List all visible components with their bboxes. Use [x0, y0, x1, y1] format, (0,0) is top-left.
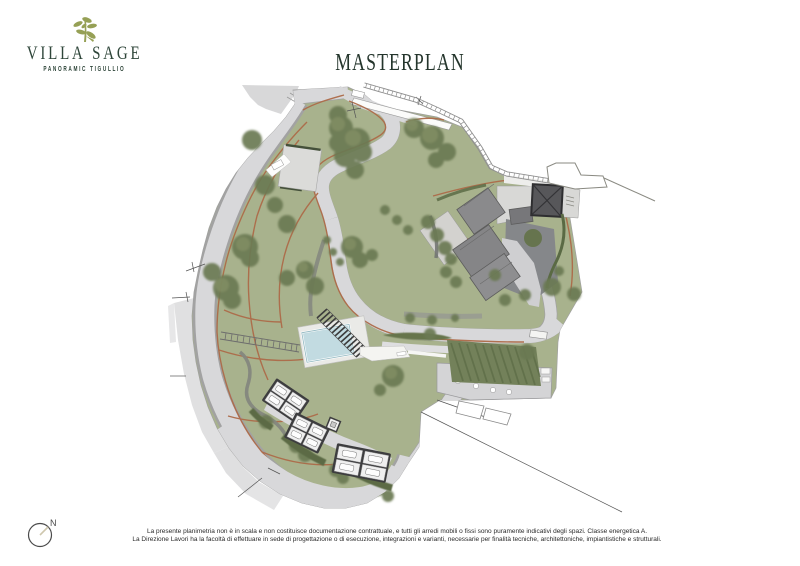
- svg-text:N: N: [50, 518, 57, 528]
